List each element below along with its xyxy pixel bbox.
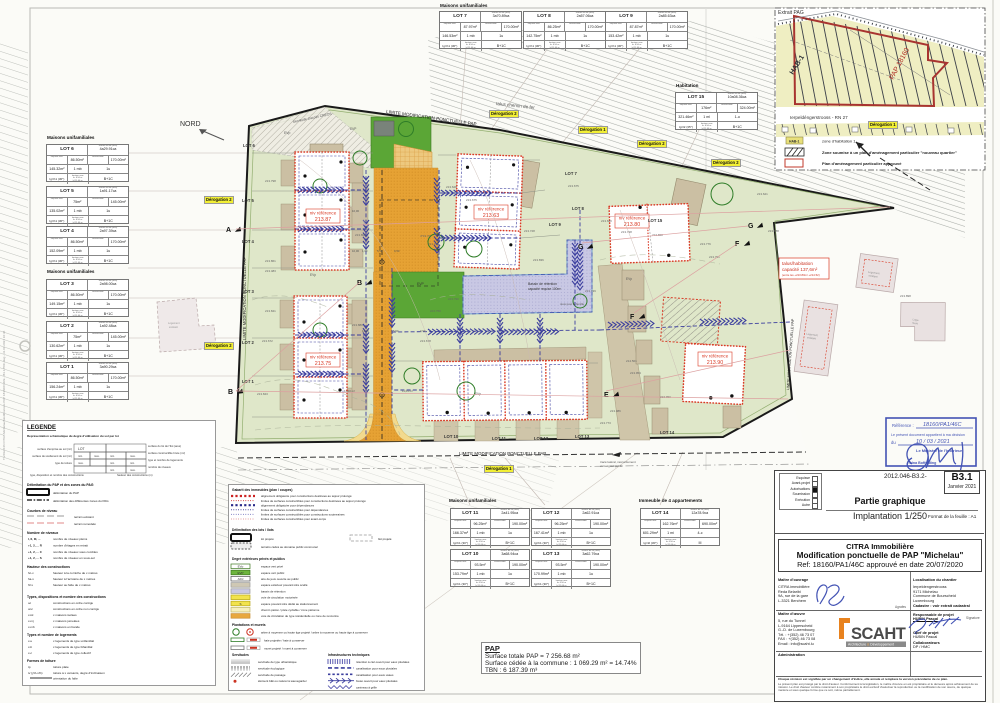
svg-text:Types, dispositions et nombre: Types, dispositions et nombre des constr… — [27, 595, 106, 599]
svg-text:x-u: x-u — [28, 639, 32, 643]
svg-text:voie de circulation motorisée: voie de circulation motorisée — [261, 596, 298, 600]
svg-text:x-b: x-b — [28, 645, 32, 649]
svg-text:type, disposition et nombre de: type, disposition et nombre des construc… — [30, 473, 84, 477]
svg-text:surface constructible brute (m: surface constructible brute (m²) — [148, 451, 185, 455]
svg-text:SCAHT: SCAHT — [851, 625, 906, 643]
svg-text:hauteur au faîte de x mètres: hauteur au faîte de x mètres — [53, 583, 91, 587]
svg-text:Types et nombre de logements: Types et nombre de logements — [27, 633, 77, 637]
svg-text:Formes de toiture: Formes de toiture — [27, 659, 56, 663]
svg-text:LOT: LOT — [78, 447, 85, 451]
svg-text:toiture à x versants, degré d': toiture à x versants, degré d'inclinaiso… — [53, 671, 105, 675]
svg-text:Hauteur des constructions: Hauteur des constructions — [27, 565, 70, 569]
svg-text:x maisons isolées: x maisons isolées — [53, 613, 77, 617]
svg-text:orientation du faîte: orientation du faîte — [53, 677, 78, 681]
svg-text:EVp: EVp — [238, 565, 244, 569]
svg-text:min.: min. — [110, 468, 115, 472]
svg-text:tv (y%-x%): tv (y%-x%) — [28, 671, 43, 675]
svg-text:surface du lot de l'îlot (ares: surface du lot de l'îlot (ares) — [148, 444, 181, 448]
svg-text:espace vert privé: espace vert privé — [261, 565, 283, 569]
svg-text:max.: max. — [130, 455, 136, 458]
svg-text:type de toiture: type de toiture — [55, 461, 73, 465]
svg-text:Référence :: Référence : — [892, 423, 914, 428]
svg-text:LEGENDE: LEGENDE — [27, 425, 56, 431]
svg-text:espace pouvant être dédié au s: espace pouvant être dédié au stationneme… — [261, 602, 318, 606]
svg-text:élément bâti ou naturel à sauv: élément bâti ou naturel à sauvegarder — [258, 679, 307, 683]
svg-text:canalisation pour eaux usées: canalisation pour eaux usées — [356, 673, 394, 677]
svg-text:servitude de passage: servitude de passage — [258, 673, 286, 677]
svg-text:îlot projeté: îlot projeté — [377, 537, 392, 541]
svg-text:+1, 2, ... C: +1, 2, ... C — [28, 550, 43, 554]
svg-text:+1, 2, ... S: +1, 2, ... S — [28, 556, 42, 560]
svg-text:nombre de niveaux en sous-sol: nombre de niveaux en sous-sol — [53, 556, 95, 560]
svg-text:Délimitation des lots / îlots: Délimitation des lots / îlots — [232, 528, 274, 532]
svg-text:surface de scellement du sol (: surface de scellement du sol (m²) — [32, 454, 72, 458]
svg-text:lot projeté: lot projeté — [261, 537, 274, 541]
svg-text:Plantations et murets: Plantations et murets — [232, 623, 266, 627]
svg-text:x-mb: x-mb — [28, 625, 35, 629]
svg-text:x logements de type bifamilial: x logements de type bifamilial — [53, 645, 93, 649]
svg-text:chemin piéton / piste cyclable: chemin piéton / piste cyclable / zone pi… — [261, 608, 320, 612]
svg-text:Architecture & Développement: Architecture & Développement — [848, 643, 894, 647]
svg-text:canalisation pour eaux pluvial: canalisation pour eaux pluviales — [356, 666, 398, 670]
svg-text:voie de circulation de type ré: voie de circulation de type résidentiell… — [261, 614, 339, 618]
svg-text:alignement obligatoire pour dé: alignement obligatoire pour dépendances — [261, 503, 315, 507]
svg-text:hauteur à l'acrotère de x mètr: hauteur à l'acrotère de x mètres — [53, 577, 96, 581]
svg-text:caniveau à grille: caniveau à grille — [356, 686, 377, 689]
svg-text:limites de surfaces constructi: limites de surfaces constructibles pour … — [261, 499, 366, 503]
svg-text:toiture plate: toiture plate — [53, 665, 69, 669]
svg-text:oc: oc — [28, 601, 32, 605]
svg-text:bassin de rétention: bassin de rétention — [261, 589, 286, 593]
svg-text:x-mj: x-mj — [28, 619, 34, 623]
svg-text:x logements de type collectif: x logements de type collectif — [53, 651, 91, 655]
svg-text:terrain remodelé: terrain remodelé — [74, 522, 96, 526]
svg-text:Le présent document appartient: Le présent document appartient à ma déci… — [891, 433, 965, 437]
svg-text:nombre d'étages en retrait: nombre d'étages en retrait — [53, 543, 88, 547]
svg-text:limites de surfaces constructi: limites de surfaces constructibles pour … — [261, 517, 326, 521]
svg-text:x-c: x-c — [28, 651, 32, 655]
svg-text:tp: tp — [28, 665, 31, 669]
svg-text:max.: max. — [78, 462, 84, 465]
svg-text:+1, 2, ... R: +1, 2, ... R — [28, 543, 43, 547]
svg-text:fossé ouvert pour eaux pluvial: fossé ouvert pour eaux pluviales — [356, 679, 398, 683]
svg-text:servitude écologique: servitude écologique — [258, 666, 285, 670]
svg-text:max.: max. — [130, 469, 136, 472]
svg-text:nombre de niveaux sous combles: nombre de niveaux sous combles — [53, 550, 98, 554]
svg-text:Nombre de niveaux: Nombre de niveaux — [27, 531, 58, 535]
svg-text:muret projeté / muret à conser: muret projeté / muret à conserver — [264, 647, 307, 651]
svg-text:Degré extérieurs privés et pub: Degré extérieurs privés et publics — [232, 557, 285, 561]
svg-text:limites de surfaces constructi: limites de surfaces constructibles pour … — [261, 513, 345, 517]
svg-text:zone d'habitation 1: zone d'habitation 1 — [822, 139, 856, 144]
svg-text:nombre de niveaux: nombre de niveaux — [148, 465, 172, 469]
svg-text:EVP: EVP — [237, 571, 243, 575]
svg-text:constructions en ordre non con: constructions en ordre non contigu — [53, 607, 99, 611]
svg-text:S: S — [239, 602, 241, 606]
svg-text:ha-x: ha-x — [28, 577, 34, 581]
svg-text:délimitation du PAP: délimitation du PAP — [53, 491, 79, 495]
svg-text:limites de surfaces constructi: limites de surfaces constructibles pour … — [261, 508, 329, 512]
svg-text:Taina Bofferding: Taina Bofferding — [908, 461, 936, 465]
svg-text:du: du — [891, 440, 896, 445]
svg-text:x maisons en bande: x maisons en bande — [53, 625, 80, 629]
svg-text:HAB-1: HAB-1 — [789, 139, 799, 143]
svg-text:I, II, III, ...: I, II, III, ... — [28, 537, 41, 541]
svg-text:x logements de type unifamilia: x logements de type unifamilial — [53, 639, 94, 643]
svg-text:servitude de type urbanistique: servitude de type urbanistique — [258, 660, 297, 664]
svg-text:x maisons jumelées: x maisons jumelées — [53, 619, 80, 623]
svg-text:espace extérieur pouvant être: espace extérieur pouvant être scellé — [261, 583, 308, 587]
svg-text:surface d'emprise au sol (m²): surface d'emprise au sol (m²) — [37, 447, 72, 451]
svg-text:Infrastructures techniques: Infrastructures techniques — [328, 653, 370, 657]
svg-text:Gabarit des immeubles (plan /: Gabarit des immeubles (plan / coupes) — [232, 488, 292, 492]
svg-text:aire de jeux ouverte au public: aire de jeux ouverte au public — [261, 577, 299, 581]
svg-text:arbre à moyenne ou haute tige: arbre à moyenne ou haute tige projeté / … — [261, 631, 368, 635]
svg-text:min.: min. — [110, 461, 115, 465]
svg-text:hauteur des constructions (m): hauteur des constructions (m) — [117, 473, 153, 477]
svg-text:délimitation des différentes z: délimitation des différentes zones du PA… — [53, 499, 109, 503]
svg-text:max.: max. — [94, 455, 100, 458]
svg-text:terrain existant: terrain existant — [74, 515, 94, 519]
svg-text:onc: onc — [28, 607, 33, 611]
svg-text:min.: min. — [78, 454, 83, 458]
svg-text:alignement obligatoire pour co: alignement obligatoire pour construction… — [261, 494, 352, 498]
svg-text:ADJ: ADJ — [238, 577, 244, 581]
svg-text:type et nombre de logements: type et nombre de logements — [148, 458, 183, 462]
svg-text:Courbes de niveau: Courbes de niveau — [27, 509, 57, 513]
svg-text:min.: min. — [110, 454, 115, 458]
svg-text:Délimitation du PAP et des zon: Délimitation du PAP et des zones du PAG — [27, 483, 94, 487]
svg-text:espace vert public: espace vert public — [261, 571, 285, 575]
svg-text:Représentation schématique du: Représentation schématique du degré d'ut… — [27, 434, 119, 438]
svg-text:Ierpeldéngerstrooss - RN 27: Ierpeldéngerstrooss - RN 27 — [790, 115, 848, 120]
svg-text:min.: min. — [130, 461, 135, 465]
svg-text:x-isl: x-isl — [28, 613, 34, 617]
svg-text:nombre de niveaux pleins: nombre de niveaux pleins — [53, 537, 88, 541]
svg-text:constructions en ordre contigu: constructions en ordre contigu — [53, 601, 94, 605]
svg-text:hc-x: hc-x — [28, 571, 34, 575]
svg-text:Extrait PAG: Extrait PAG — [778, 10, 804, 16]
svg-text:18160/PA1/46C: 18160/PA1/46C — [923, 422, 961, 428]
svg-text:hauteur à la corniche de x mèt: hauteur à la corniche de x mètres — [53, 571, 98, 575]
svg-text:Plan d'aménagement particulier: Plan d'aménagement particulier approuvé — [822, 161, 902, 166]
svg-text:hf-x: hf-x — [28, 583, 34, 587]
svg-text:Zone soumise à un plan d'aména: Zone soumise à un plan d'aménagement par… — [822, 150, 957, 155]
svg-text:Servitudes: Servitudes — [232, 653, 249, 657]
svg-text:rétention à ciel ouvert pour e: rétention à ciel ouvert pour eaux pluvia… — [356, 660, 410, 664]
svg-text:terrains cédés au domaine publ: terrains cédés au domaine public communa… — [261, 545, 318, 549]
svg-text:haie projetée / haie à conserv: haie projetée / haie à conserver — [264, 639, 305, 643]
